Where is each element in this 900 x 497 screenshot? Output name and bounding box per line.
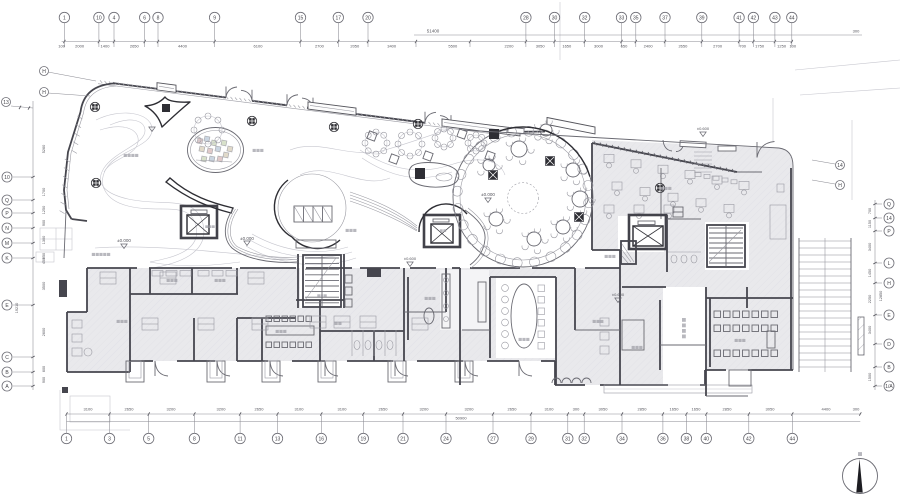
svg-text:1: 1 xyxy=(63,15,66,21)
svg-text:16: 16 xyxy=(319,436,325,442)
svg-text:3100: 3100 xyxy=(338,407,348,412)
svg-text:43: 43 xyxy=(772,15,778,21)
svg-text:1: 1 xyxy=(65,436,68,442)
svg-text:300: 300 xyxy=(853,407,860,412)
svg-text:±0.000: ±0.000 xyxy=(481,192,495,197)
svg-text:3200: 3200 xyxy=(217,407,227,412)
svg-text:2650: 2650 xyxy=(508,407,518,412)
svg-text:1650: 1650 xyxy=(692,407,702,412)
svg-text:17: 17 xyxy=(336,15,342,21)
svg-text:3050: 3050 xyxy=(766,407,776,412)
svg-text:3400: 3400 xyxy=(868,326,872,334)
svg-text:2650: 2650 xyxy=(130,44,140,49)
svg-text:34: 34 xyxy=(619,436,625,442)
svg-text:C: C xyxy=(5,355,9,361)
svg-text:300: 300 xyxy=(573,407,580,412)
svg-text:3000: 3000 xyxy=(594,44,604,49)
svg-text:3200: 3200 xyxy=(420,407,430,412)
svg-text:450: 450 xyxy=(42,258,46,264)
svg-text:3400: 3400 xyxy=(868,243,872,251)
svg-text:10: 10 xyxy=(4,175,10,181)
svg-text:700: 700 xyxy=(739,44,746,49)
svg-text:900: 900 xyxy=(42,377,46,383)
svg-text:2000: 2000 xyxy=(75,44,85,49)
svg-text:2650: 2650 xyxy=(678,44,688,49)
svg-text:D: D xyxy=(887,342,891,348)
svg-text:14: 14 xyxy=(837,163,843,169)
svg-text:20: 20 xyxy=(365,15,371,21)
svg-text:±0.600: ±0.600 xyxy=(612,292,625,297)
svg-text:1450: 1450 xyxy=(868,269,872,277)
svg-text:1500: 1500 xyxy=(868,373,872,381)
svg-text:1750: 1750 xyxy=(755,44,765,49)
svg-text:3200: 3200 xyxy=(465,407,475,412)
svg-text:2650: 2650 xyxy=(379,407,389,412)
svg-text:L: L xyxy=(888,261,891,267)
svg-text:29: 29 xyxy=(528,436,534,442)
svg-text:600: 600 xyxy=(42,366,46,372)
svg-text:44: 44 xyxy=(790,436,796,442)
svg-text:3100: 3100 xyxy=(84,407,94,412)
svg-text:5500: 5500 xyxy=(448,44,458,49)
svg-text:3100: 3100 xyxy=(295,407,305,412)
svg-text:3050: 3050 xyxy=(599,407,609,412)
svg-text:300: 300 xyxy=(853,29,860,34)
svg-text:1150: 1150 xyxy=(868,220,872,228)
svg-text:100: 100 xyxy=(789,44,796,49)
svg-text:37: 37 xyxy=(662,15,668,21)
svg-text:50900: 50900 xyxy=(455,416,467,421)
svg-text:41: 41 xyxy=(736,15,742,21)
svg-text:33: 33 xyxy=(619,15,625,21)
svg-text:2650: 2650 xyxy=(255,407,265,412)
svg-text:1400: 1400 xyxy=(101,44,111,49)
svg-text:32: 32 xyxy=(581,436,587,442)
svg-text:5260: 5260 xyxy=(42,145,46,153)
svg-text:12850: 12850 xyxy=(879,291,883,302)
svg-text:6: 6 xyxy=(143,15,146,21)
svg-text:H: H xyxy=(887,281,891,287)
svg-text:2050: 2050 xyxy=(350,44,360,49)
svg-text:3: 3 xyxy=(108,436,111,442)
svg-text:1250: 1250 xyxy=(42,206,46,214)
svg-text:1300: 1300 xyxy=(42,236,46,244)
svg-text:19: 19 xyxy=(361,436,367,442)
svg-text:8: 8 xyxy=(157,15,160,21)
svg-text:9: 9 xyxy=(213,15,216,21)
svg-text:N: N xyxy=(5,226,9,232)
svg-text:1650: 1650 xyxy=(670,407,680,412)
svg-text:3100: 3100 xyxy=(545,407,555,412)
svg-text:H: H xyxy=(42,90,46,96)
svg-text:±0.000: ±0.000 xyxy=(117,238,131,243)
svg-text:Q: Q xyxy=(887,202,891,208)
svg-text:38: 38 xyxy=(684,436,690,442)
svg-text:900: 900 xyxy=(42,220,46,226)
svg-text:42: 42 xyxy=(746,436,752,442)
svg-text:27: 27 xyxy=(490,436,496,442)
svg-text:35: 35 xyxy=(633,15,639,21)
svg-text:28: 28 xyxy=(523,15,529,21)
svg-text:1250: 1250 xyxy=(777,44,787,49)
svg-text:15: 15 xyxy=(298,15,304,21)
svg-text:1650: 1650 xyxy=(562,44,572,49)
svg-text:32: 32 xyxy=(582,15,588,21)
svg-text:3400: 3400 xyxy=(387,44,397,49)
svg-text:10: 10 xyxy=(96,15,102,21)
svg-text:4: 4 xyxy=(113,15,116,21)
svg-text:4400: 4400 xyxy=(178,44,188,49)
svg-text:13: 13 xyxy=(3,100,9,106)
svg-text:24: 24 xyxy=(443,436,449,442)
svg-text:36: 36 xyxy=(660,436,666,442)
svg-text:19210: 19210 xyxy=(15,303,19,314)
svg-text:5: 5 xyxy=(147,436,150,442)
svg-text:H: H xyxy=(42,69,46,75)
svg-text:2400: 2400 xyxy=(644,44,654,49)
svg-text:±0.600: ±0.600 xyxy=(404,256,417,261)
svg-text:4400: 4400 xyxy=(822,407,832,412)
svg-text:14: 14 xyxy=(886,216,892,222)
svg-text:31: 31 xyxy=(565,436,571,442)
svg-text:42: 42 xyxy=(751,15,757,21)
svg-text:2700: 2700 xyxy=(315,44,325,49)
svg-text:±0.000: ±0.000 xyxy=(240,236,254,241)
svg-text:21: 21 xyxy=(400,436,406,442)
svg-text:39: 39 xyxy=(699,15,705,21)
svg-text:11: 11 xyxy=(237,436,242,442)
svg-text:44: 44 xyxy=(789,15,795,21)
svg-text:1/A: 1/A xyxy=(885,384,893,390)
svg-text:700: 700 xyxy=(868,208,872,214)
svg-text:8: 8 xyxy=(193,436,196,442)
svg-text:2600: 2600 xyxy=(42,328,46,336)
svg-text:Q: Q xyxy=(5,198,9,204)
svg-text:2850: 2850 xyxy=(638,407,648,412)
svg-text:2650: 2650 xyxy=(125,407,135,412)
svg-text:H: H xyxy=(838,183,842,189)
svg-text:M: M xyxy=(5,241,9,247)
svg-text:30: 30 xyxy=(552,15,558,21)
svg-text:2200: 2200 xyxy=(505,44,515,49)
svg-text:2850: 2850 xyxy=(723,407,733,412)
svg-text:±0.600: ±0.600 xyxy=(697,126,710,131)
svg-text:650: 650 xyxy=(621,44,628,49)
svg-text:3500: 3500 xyxy=(42,282,46,290)
svg-text:13: 13 xyxy=(275,436,281,442)
svg-text:2250: 2250 xyxy=(868,295,872,303)
svg-text:100: 100 xyxy=(58,44,65,49)
svg-text:6100: 6100 xyxy=(254,44,264,49)
svg-text:1700: 1700 xyxy=(42,188,46,196)
svg-text:2700: 2700 xyxy=(713,44,723,49)
svg-text:40: 40 xyxy=(704,436,710,442)
svg-text:3200: 3200 xyxy=(167,407,177,412)
svg-text:51400: 51400 xyxy=(427,29,440,34)
svg-text:3050: 3050 xyxy=(536,44,546,49)
